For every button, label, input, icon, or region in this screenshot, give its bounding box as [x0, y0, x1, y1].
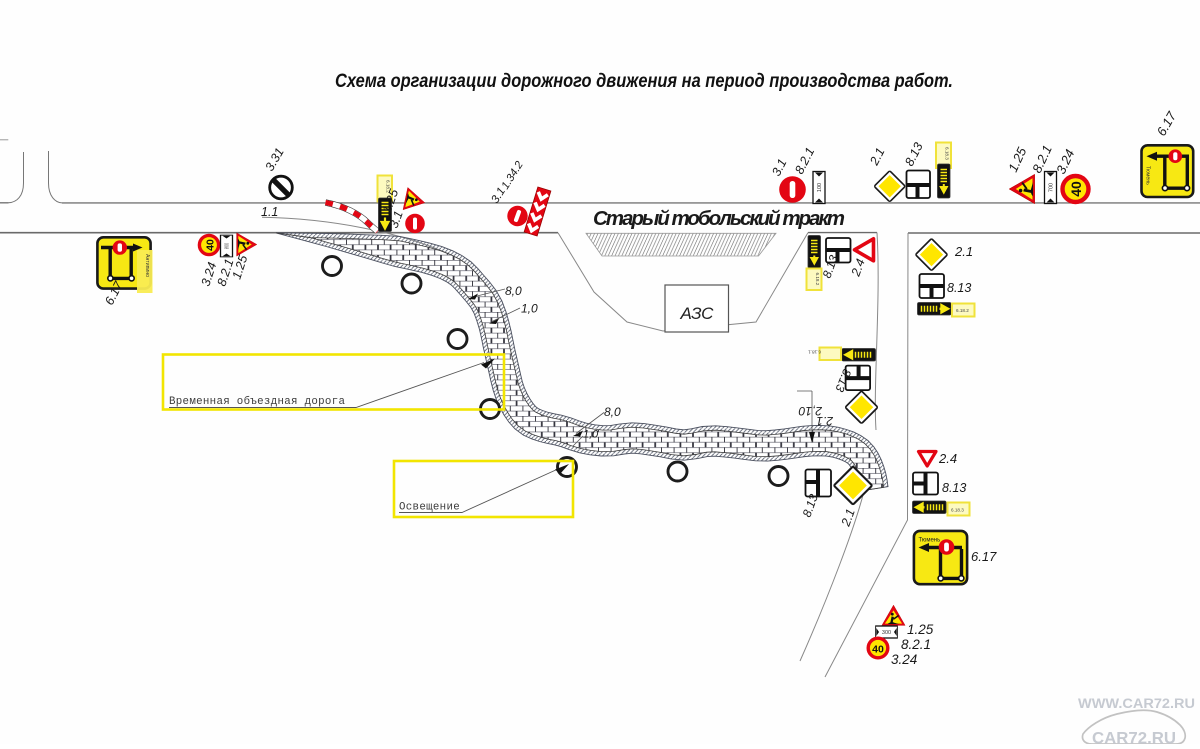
svg-text:2.4: 2.4: [938, 451, 957, 466]
svg-text:Тюмень: Тюмень: [1145, 166, 1151, 185]
svg-text:40: 40: [204, 239, 216, 251]
svg-text:8.13: 8.13: [942, 481, 966, 495]
svg-text:1,0: 1,0: [521, 302, 538, 316]
svg-text:8,0: 8,0: [604, 405, 621, 419]
svg-text:1,0: 1,0: [583, 429, 599, 441]
svg-text:6.18.3: 6.18.3: [951, 508, 964, 513]
svg-text:CAR72.RU: CAR72.RU: [1092, 730, 1176, 745]
svg-text:Временная объездная дорога: Временная объездная дорога: [169, 395, 345, 408]
svg-text:100: 100: [817, 183, 823, 192]
svg-text:WWW.CAR72.RU: WWW.CAR72.RU: [1078, 696, 1195, 711]
svg-text:8,0: 8,0: [505, 284, 522, 298]
svg-text:40: 40: [1068, 181, 1084, 197]
svg-text:8.2.1: 8.2.1: [901, 637, 931, 652]
svg-text:6.18.1: 6.18.1: [808, 350, 821, 355]
svg-text:Схема организации дорожного дв: Схема организации дорожного движения на …: [335, 71, 953, 92]
svg-text:Старый тобольский тракт: Старый тобольский тракт: [593, 207, 845, 230]
svg-text:2.1: 2.1: [816, 414, 834, 428]
svg-text:700: 700: [1049, 183, 1055, 192]
svg-text:1.1: 1.1: [261, 205, 278, 219]
svg-text:Тюмень: Тюмень: [919, 538, 941, 544]
svg-text:Освещение: Освещение: [399, 502, 460, 514]
svg-text:300: 300: [882, 630, 891, 636]
svg-text:3.24: 3.24: [891, 652, 917, 667]
svg-text:1.25: 1.25: [907, 622, 934, 637]
svg-text:АЗС: АЗС: [680, 304, 715, 323]
svg-text:2.1: 2.1: [954, 244, 973, 259]
svg-text:6.18.3: 6.18.3: [945, 147, 950, 160]
svg-text:800: 800: [224, 243, 230, 250]
svg-text:Антипино: Антипино: [144, 254, 150, 277]
svg-text:6.18.2: 6.18.2: [956, 308, 969, 313]
svg-text:8.13: 8.13: [947, 281, 971, 295]
svg-text:40: 40: [872, 643, 884, 655]
svg-text:6.17: 6.17: [971, 549, 997, 564]
